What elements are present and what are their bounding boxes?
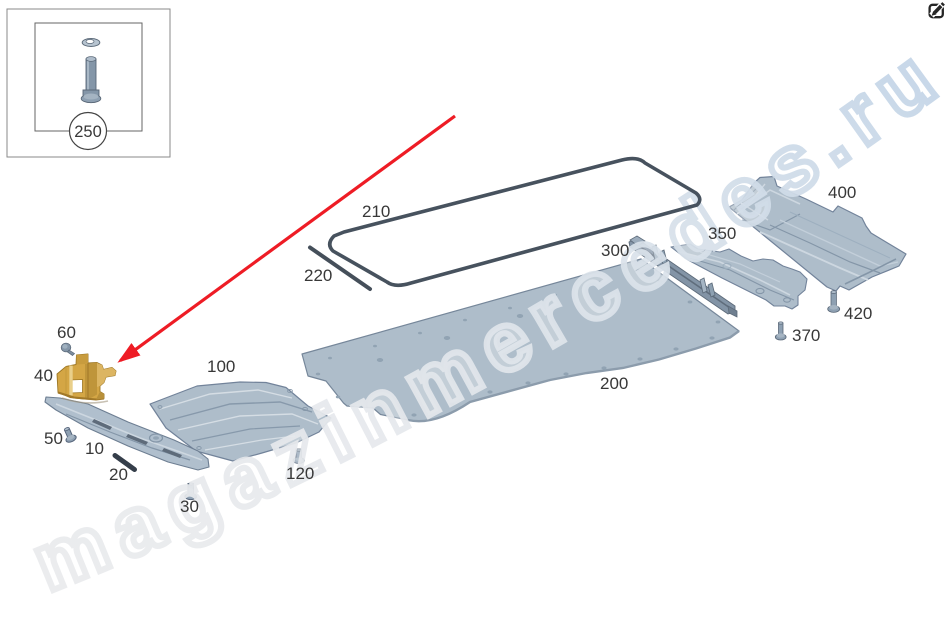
svg-text:40: 40 (34, 366, 53, 385)
svg-text:60: 60 (57, 323, 76, 342)
svg-text:20: 20 (109, 465, 128, 484)
svg-text:200: 200 (600, 374, 628, 393)
svg-text:210: 210 (362, 202, 390, 221)
svg-text:400: 400 (828, 183, 856, 202)
svg-text:370: 370 (792, 326, 820, 345)
svg-text:50: 50 (44, 429, 63, 448)
svg-text:420: 420 (844, 304, 872, 323)
svg-text:100: 100 (207, 357, 235, 376)
svg-text:30: 30 (180, 497, 199, 516)
svg-text:300: 300 (601, 241, 629, 260)
svg-text:250: 250 (74, 123, 102, 141)
svg-text:10: 10 (85, 439, 104, 458)
svg-text:350: 350 (708, 224, 736, 243)
svg-text:220: 220 (304, 266, 332, 285)
svg-text:120: 120 (286, 464, 314, 483)
